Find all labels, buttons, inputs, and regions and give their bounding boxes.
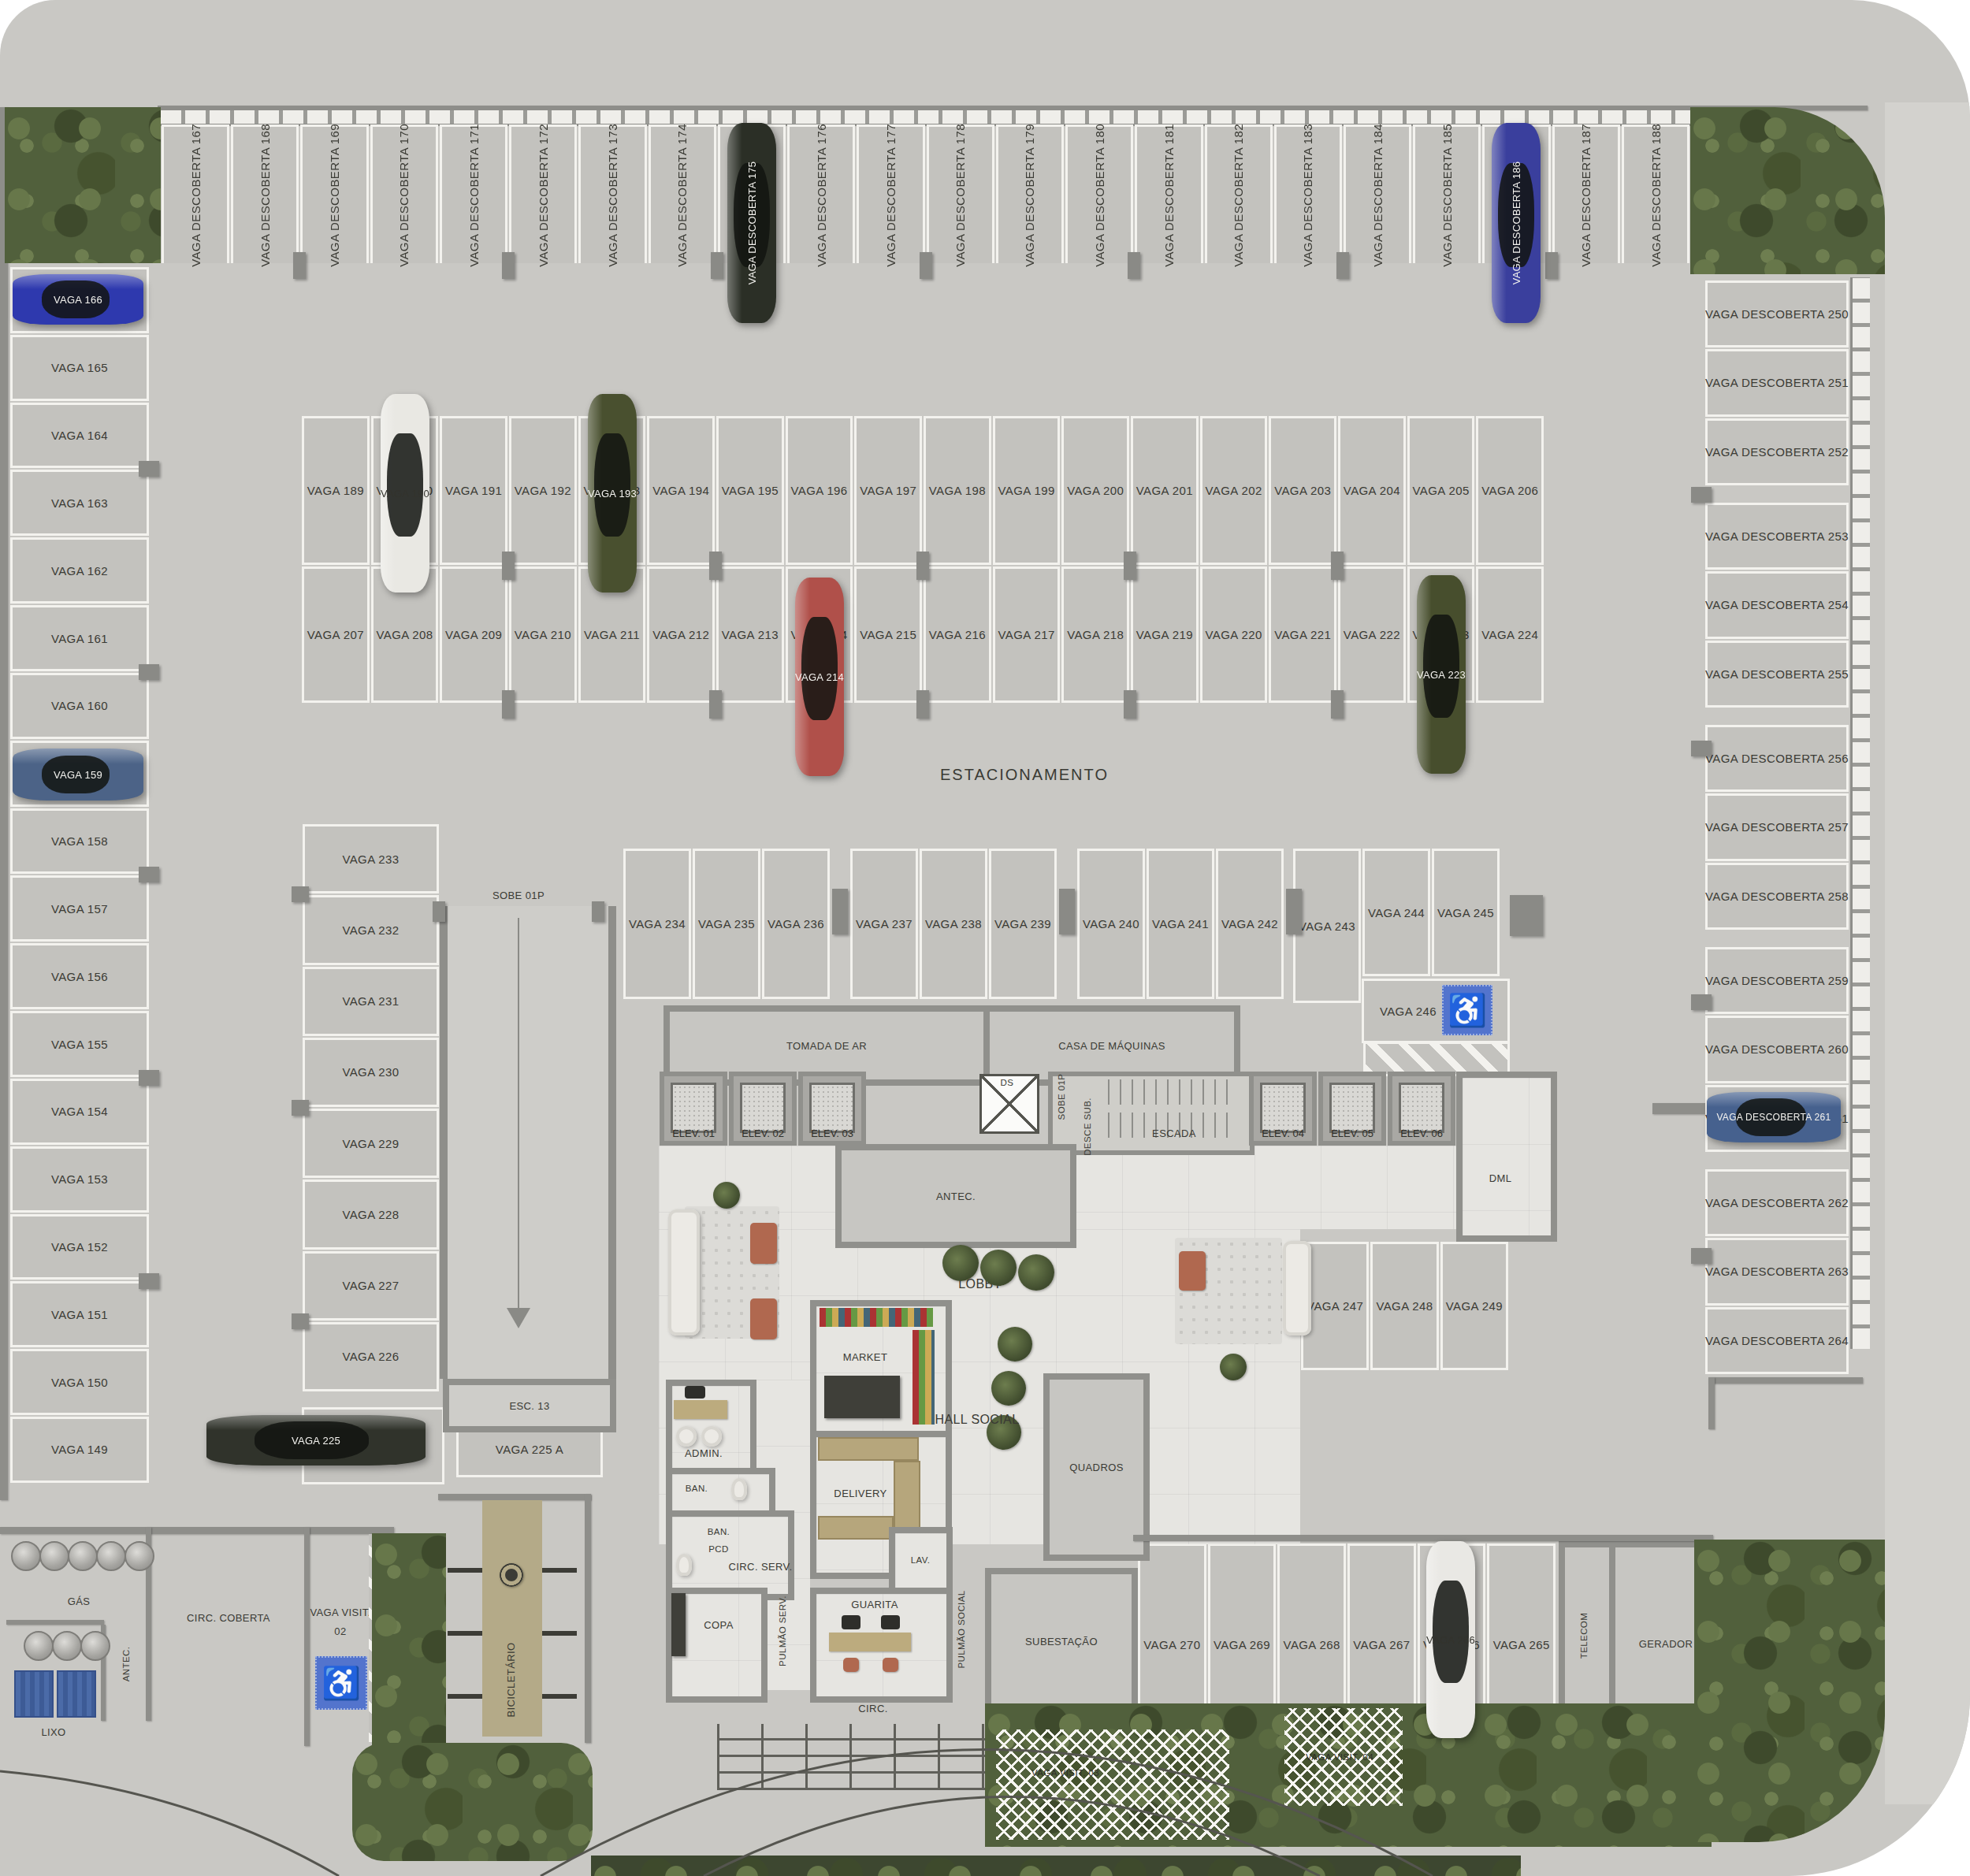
- admin-guest-chair-1: [676, 1426, 697, 1447]
- parking-stall: VAGA 158: [10, 808, 149, 875]
- stall-label: VAGA 150: [51, 1376, 108, 1389]
- stall-label: VAGA 249: [1446, 1299, 1503, 1313]
- stall-label: VAGA 242: [1221, 917, 1278, 931]
- parking-stall: VAGA 237: [850, 849, 918, 999]
- parking-stall: VAGA DESCOBERTA 174: [649, 124, 716, 263]
- parking-stall: VAGA DESCOBERTA 176: [787, 124, 855, 263]
- parking-stall: VAGA 227: [303, 1251, 439, 1321]
- stall-label: VAGA 152: [51, 1240, 108, 1254]
- stall-group: VAGA DESCOBERTA 253VAGA DESCOBERTA 254VA…: [1704, 502, 1849, 708]
- stall-label: VAGA 195: [722, 484, 779, 497]
- parking-stall: VAGA 220: [1200, 567, 1268, 703]
- stall-label: VAGA 265: [1493, 1638, 1550, 1651]
- parking-stall: VAGA DESCOBERTA 260: [1705, 1016, 1849, 1083]
- parking-stall: VAGA 233: [303, 824, 439, 893]
- column-pillar: [292, 1100, 309, 1116]
- parking-stall: VAGA 156: [10, 943, 149, 1009]
- column-pillar: [1331, 690, 1344, 719]
- stall-label: VAGA 230: [342, 1065, 399, 1079]
- elevator-cab-icon: [671, 1083, 716, 1133]
- stall-label-on-car: VAGA 159: [54, 769, 102, 781]
- delivery-lockers-top: [818, 1437, 919, 1461]
- parking-floor-plan: VAGA DESCOBERTA 167VAGA DESCOBERTA 168VA…: [0, 0, 1970, 1876]
- estacionamento-label: ESTACIONAMENTO: [940, 766, 1109, 784]
- ban-label: BAN.: [686, 1484, 708, 1493]
- bike-rack: [542, 1568, 577, 1573]
- lav-label: LAV.: [911, 1555, 931, 1565]
- parking-stall: VAGA 164: [10, 403, 149, 469]
- stall-label: VAGA 225 A: [496, 1443, 563, 1456]
- ban-toilet: [731, 1478, 747, 1500]
- guarita-chair-1: [842, 1615, 860, 1629]
- parking-stall: VAGA 202: [1200, 416, 1268, 565]
- parking-stall: VAGA DESCOBERTA 187: [1552, 124, 1620, 263]
- stall-col-right: VAGA DESCOBERTA 250VAGA DESCOBERTA 251VA…: [1704, 280, 1849, 1391]
- stall-col-left: VAGA 166VAGA 165VAGA 164VAGA 163VAGA 162…: [9, 266, 150, 1484]
- stall-label: VAGA 194: [652, 484, 709, 497]
- stall-label-on-car: VAGA DESCOBERTA 175: [746, 162, 758, 285]
- stall-label: VAGA 246: [1380, 1005, 1437, 1018]
- parking-stall: VAGA 192: [509, 416, 577, 565]
- column-pillar: [139, 1273, 159, 1289]
- stall-label: VAGA 189: [307, 484, 364, 497]
- parking-stall: VAGA 221: [1269, 567, 1336, 703]
- room-label: ANTEC.: [936, 1191, 976, 1202]
- parking-stall: VAGA DESCOBERTA 263: [1705, 1238, 1849, 1305]
- parking-stall: VAGA 236: [762, 849, 830, 999]
- dml-label: DML: [1489, 1172, 1512, 1184]
- stall-label: VAGA 155: [51, 1038, 108, 1051]
- bike-rack: [448, 1631, 482, 1636]
- guarita-desk: [829, 1633, 911, 1651]
- parking-stall: VAGA DESCOBERTA 178: [927, 124, 994, 263]
- room-subestacao: SUBESTAÇÃO: [985, 1568, 1138, 1714]
- visit04-label: VAGA VISIT. 04: [1306, 1752, 1373, 1762]
- stall-label: VAGA 235: [698, 917, 755, 931]
- stall-label: VAGA 164: [51, 429, 108, 442]
- stall-label: VAGA 154: [51, 1105, 108, 1118]
- stall-label: VAGA 151: [51, 1308, 108, 1321]
- stall-label: VAGA 161: [51, 632, 108, 645]
- armchair-right-1: [1179, 1251, 1206, 1291]
- stall-row-234-236: VAGA 234VAGA 235VAGA 236: [623, 848, 831, 1000]
- stall-row-247-249: VAGA 247VAGA 248VAGA 249: [1300, 1241, 1509, 1371]
- stall-label: VAGA DESCOBERTA 264: [1705, 1334, 1849, 1347]
- room-label: SUBESTAÇÃO: [1025, 1636, 1098, 1648]
- parking-stall: VAGA 234: [623, 849, 691, 999]
- parking-stall: VAGA 160: [10, 673, 149, 739]
- parking-stall: VAGA 245: [1432, 849, 1500, 976]
- hall-social-label: HALL SOCIAL: [935, 1413, 1020, 1427]
- stall-row-top: VAGA DESCOBERTA 167VAGA DESCOBERTA 168VA…: [161, 124, 1690, 264]
- parking-stall: VAGA DESCOBERTA 253: [1705, 503, 1849, 570]
- parking-stall: VAGA 209: [440, 567, 507, 703]
- visit03-lattice: [996, 1729, 1229, 1840]
- stall-group: VAGA DESCOBERTA 262VAGA DESCOBERTA 263VA…: [1704, 1168, 1849, 1375]
- gas-cylinder: [52, 1631, 82, 1661]
- stall-label: VAGA 196: [790, 484, 847, 497]
- circ-label: CIRC.: [858, 1703, 887, 1714]
- bike-icon: [500, 1563, 523, 1587]
- parking-stall: VAGA 244: [1362, 849, 1430, 976]
- parking-stall: VAGA DESCOBERTA 255: [1705, 641, 1849, 708]
- stall-label: VAGA 165: [51, 361, 108, 374]
- bike-rack: [542, 1694, 577, 1699]
- parking-stall: VAGA 239: [989, 849, 1057, 999]
- elevator-05: ELEV. 05: [1318, 1072, 1386, 1146]
- stall-label: VAGA DESCOBERTA 255: [1705, 667, 1849, 681]
- stall-label: VAGA DESCOBERTA 176: [815, 124, 828, 267]
- entry-railing: [717, 1724, 987, 1790]
- stall-label: VAGA 160: [51, 699, 108, 712]
- stall-label-on-car: VAGA 223: [1417, 669, 1466, 681]
- stall-label: VAGA DESCOBERTA 170: [397, 124, 411, 267]
- stall-label: VAGA 220: [1206, 628, 1262, 641]
- stall-label: VAGA 231: [342, 994, 399, 1008]
- parking-stall: VAGA DESCOBERTA 250: [1705, 280, 1849, 347]
- ban-pcd-toilet: [676, 1554, 692, 1576]
- elevator-bank-1: ELEV. 01 ELEV. 02 ELEV. 03: [659, 1072, 867, 1146]
- column-pillar: [1331, 552, 1344, 580]
- stall-label: VAGA DESCOBERTA 253: [1705, 529, 1849, 543]
- stall-label: VAGA 213: [722, 628, 779, 641]
- parking-stall: VAGA 152: [10, 1214, 149, 1280]
- stall-label: VAGA 219: [1136, 628, 1193, 641]
- plant-antec-3: [1018, 1254, 1054, 1291]
- stall-label: VAGA 244: [1368, 906, 1425, 919]
- sidewalk-right: [1885, 102, 1970, 1804]
- wall-visit02-left: [304, 1527, 310, 1746]
- parking-stall: VAGA DESCOBERTA 179: [996, 124, 1064, 263]
- delivery-label: DELIVERY: [834, 1488, 886, 1499]
- stall-label: VAGA 212: [652, 628, 709, 641]
- car-glass: [387, 433, 423, 537]
- stall-label: VAGA DESCOBERTA 252: [1705, 445, 1849, 459]
- admin-desk: [674, 1400, 727, 1419]
- stall-label: VAGA 239: [994, 917, 1051, 931]
- stall-label: VAGA 149: [51, 1443, 108, 1456]
- parking-stall: VAGA DESCOBERTA 251: [1705, 349, 1849, 416]
- guarita-visitor-chair-2: [883, 1658, 898, 1672]
- stall-label: VAGA 237: [856, 917, 913, 931]
- stall-label: VAGA DESCOBERTA 177: [884, 124, 898, 267]
- stall-label: VAGA 163: [51, 496, 108, 510]
- parking-stall: VAGA 195: [716, 416, 784, 565]
- parking-stall: VAGA DESCOBERTA 256: [1705, 725, 1849, 792]
- stall-col-233-226: VAGA 233VAGA 232VAGA 231VAGA 230VAGA 229…: [302, 823, 440, 1392]
- parking-stall: VAGA 224: [1476, 567, 1544, 703]
- stall-label: VAGA 269: [1214, 1638, 1270, 1651]
- car-glass: [801, 617, 838, 720]
- elevator-02: ELEV. 02: [729, 1072, 797, 1146]
- elevator-cab-icon: [1329, 1083, 1375, 1133]
- elevator-label: ELEV. 02: [742, 1127, 784, 1139]
- parking-stall: VAGA DESCOBERTA 257: [1705, 793, 1849, 860]
- parking-stall: VAGA 197: [854, 416, 922, 565]
- stall-label: VAGA 210: [515, 628, 571, 641]
- accessible-parking-icon: ♿: [315, 1656, 367, 1710]
- column-pillar: [1691, 487, 1712, 503]
- parking-stall: VAGA DESCOBERTA 262: [1705, 1169, 1849, 1236]
- stall-label: VAGA DESCOBERTA 167: [189, 124, 203, 267]
- column-pillar: [1286, 889, 1302, 934]
- wall-stub-dml-right: [1652, 1103, 1709, 1114]
- column-pillar: [1124, 552, 1136, 580]
- column-pillar: [292, 1313, 309, 1329]
- stall-label: VAGA DESCOBERTA 179: [1023, 124, 1036, 267]
- guarita-label: GUARITA: [851, 1599, 898, 1610]
- planter-bottom-left: [352, 1743, 593, 1861]
- stall-label: VAGA DESCOBERTA 258: [1705, 890, 1849, 903]
- column-pillar: [502, 690, 515, 719]
- plant-lobby-right: [1220, 1354, 1247, 1380]
- parking-stall: VAGA 248: [1370, 1242, 1438, 1370]
- ban-pcd-label-1: BAN.: [708, 1527, 730, 1536]
- stall-label: VAGA DESCOBERTA 251: [1705, 376, 1849, 389]
- stall-label: VAGA 158: [51, 834, 108, 848]
- column-pillar: [1691, 741, 1712, 756]
- wall-bici-top: [438, 1494, 591, 1500]
- parking-stall: VAGA 222: [1338, 567, 1406, 703]
- stall-label: VAGA 222: [1344, 628, 1400, 641]
- car: VAGA DESCOBERTA 186: [1492, 123, 1541, 323]
- stairwell-escada: [1048, 1072, 1254, 1155]
- stall-label: VAGA 198: [929, 484, 986, 497]
- elevator-06: ELEV. 06: [1388, 1072, 1455, 1146]
- stall-label: VAGA 191: [445, 484, 502, 497]
- stall-label: VAGA 208: [376, 628, 433, 641]
- stall-label-on-car: VAGA 193: [588, 488, 637, 500]
- column-pillar: [1691, 1248, 1712, 1264]
- stall-label: VAGA 192: [515, 484, 571, 497]
- parking-stall: VAGA DESCOBERTA 173: [578, 124, 646, 263]
- room-quadros: QUADROS: [1043, 1373, 1150, 1561]
- stall-label: VAGA DESCOBERTA 168: [258, 124, 272, 267]
- parking-stall: VAGA 218: [1061, 567, 1129, 703]
- gas-cylinder: [24, 1631, 54, 1661]
- copa-counter: [671, 1593, 686, 1656]
- parking-stall: VAGA 230: [303, 1038, 439, 1107]
- car: VAGA 166: [13, 274, 143, 325]
- parking-stall: VAGA DESCOBERTA 167: [162, 124, 229, 263]
- market-shelf-right: [913, 1330, 935, 1425]
- plant-antec-2: [980, 1250, 1017, 1286]
- column-pillar: [502, 552, 515, 580]
- stall-label: VAGA 211: [584, 628, 640, 641]
- visit03-label: VAGA VISIT. 03: [1031, 1768, 1099, 1778]
- gas-cylinder: [68, 1541, 98, 1571]
- parking-stall: VAGA 217: [993, 567, 1061, 703]
- parking-stall: VAGA 149: [10, 1417, 149, 1483]
- parking-stall: VAGA 240: [1077, 849, 1145, 999]
- elevator-bank-2: ELEV. 04 ELEV. 05 ELEV. 06: [1248, 1072, 1456, 1146]
- stall-label: VAGA DESCOBERTA 263: [1705, 1265, 1849, 1278]
- stall-group: VAGA DESCOBERTA 250VAGA DESCOBERTA 251VA…: [1704, 280, 1849, 486]
- sofa-left: [668, 1209, 700, 1335]
- copa-label: COPA: [704, 1619, 733, 1631]
- guarita-visitor-chair-1: [843, 1658, 859, 1672]
- stall-label: VAGA 197: [860, 484, 916, 497]
- stall-label: VAGA 206: [1481, 484, 1538, 497]
- column-pillar: [293, 252, 306, 279]
- wall-row270-top: [1133, 1535, 1713, 1541]
- stall-row-189-206: VAGA 189VAGA 190VAGA 191VAGA 192VAGA 193…: [301, 415, 1544, 566]
- parking-stall: VAGA 206: [1476, 416, 1544, 565]
- parking-stall: VAGA 150: [10, 1349, 149, 1415]
- column-pillar: [920, 252, 932, 279]
- lixo-label: LIXO: [41, 1726, 65, 1738]
- plant-lobby-left: [713, 1182, 740, 1209]
- elevator-cab-icon: [809, 1083, 855, 1133]
- ban-pcd-label-2: PCD: [708, 1544, 728, 1554]
- parking-stall: VAGA 157: [10, 875, 149, 942]
- parking-stall: VAGA 231: [303, 967, 439, 1036]
- sobe-stair-label: SOBE 01P: [1057, 1074, 1066, 1120]
- stall-label: VAGA DESCOBERTA 260: [1705, 1042, 1849, 1056]
- stall-label: VAGA 156: [51, 970, 108, 983]
- stall-group: VAGA DESCOBERTA 256VAGA DESCOBERTA 257VA…: [1704, 724, 1849, 931]
- column-pillar: [1128, 252, 1140, 279]
- parking-stall: VAGA DESCOBERTA 188: [1622, 124, 1689, 263]
- parking-stall: VAGA DESCOBERTA 171: [440, 124, 507, 263]
- stall-label: VAGA 247: [1307, 1299, 1363, 1313]
- elevator-label: ELEV. 03: [811, 1127, 853, 1139]
- stair-treads-upper: [1108, 1079, 1234, 1105]
- parking-stall: VAGA 163: [10, 470, 149, 536]
- car-glass: [1423, 615, 1459, 718]
- stall-label: VAGA DESCOBERTA 174: [675, 124, 689, 267]
- stall-label: VAGA 233: [342, 853, 399, 866]
- stall-label: VAGA 157: [51, 902, 108, 916]
- ramp-label: SOBE 01P: [492, 890, 545, 901]
- stall-label: VAGA DESCOBERTA 184: [1371, 124, 1385, 267]
- column-pillar: [1059, 889, 1075, 934]
- pulmao-serv-label: PULMÃO SERV.: [778, 1596, 787, 1666]
- car: VAGA 223: [1417, 575, 1466, 774]
- parking-stall: VAGA DESCOBERTA 258: [1705, 863, 1849, 930]
- stall-label: VAGA DESCOBERTA 181: [1162, 124, 1176, 267]
- stall-label: VAGA 245: [1437, 906, 1494, 919]
- column-pillar: [592, 901, 604, 922]
- parking-stall: VAGA 155: [10, 1011, 149, 1077]
- armchair-left-1: [750, 1223, 777, 1264]
- column-pillar: [711, 252, 723, 279]
- gas-label: GÁS: [68, 1596, 91, 1607]
- parking-stall: VAGA 249: [1440, 1242, 1508, 1370]
- stall-label: VAGA 234: [629, 917, 686, 931]
- gas-cylinder: [11, 1541, 41, 1571]
- parking-stall: VAGA DESCOBERTA 259: [1705, 947, 1849, 1014]
- car: VAGA 266: [1426, 1541, 1475, 1738]
- stall-row-240-242: VAGA 240VAGA 241VAGA 242: [1076, 848, 1284, 1000]
- wall-left: [0, 107, 8, 1500]
- parking-stall: VAGA 229: [303, 1109, 439, 1178]
- column-pillar: [1336, 252, 1349, 279]
- visit02-label-1: VAGA VISIT.: [310, 1607, 370, 1618]
- parking-stall: VAGA 228: [303, 1179, 439, 1249]
- stall-label: VAGA 207: [307, 628, 364, 641]
- parking-stall: VAGA 162: [10, 537, 149, 604]
- pulmao-social-label: PULMÃO SOCIAL: [957, 1590, 966, 1668]
- car-glass: [594, 433, 630, 537]
- stall-label-on-car: VAGA 190: [381, 488, 429, 500]
- trash-bin: [57, 1670, 96, 1718]
- parking-stall: VAGA 212: [647, 567, 715, 703]
- stall-label: VAGA DESCOBERTA 171: [467, 124, 481, 267]
- parking-stall: VAGA 165: [10, 335, 149, 401]
- stall-label: VAGA 217: [998, 628, 1054, 641]
- accessible-parking-icon: ♿: [1442, 985, 1492, 1035]
- parking-stall: VAGA DESCOBERTA 264: [1705, 1307, 1849, 1374]
- stall-label: VAGA 268: [1284, 1638, 1340, 1651]
- parking-stall: VAGA DESCOBERTA 170: [370, 124, 438, 263]
- stall-label: VAGA DESCOBERTA 262: [1705, 1196, 1849, 1209]
- stall-label: VAGA 240: [1083, 917, 1139, 931]
- market-counter: [824, 1376, 900, 1418]
- market-label: MARKET: [843, 1351, 888, 1363]
- elevator-01: ELEV. 01: [660, 1072, 727, 1146]
- parking-stall: VAGA 153: [10, 1146, 149, 1213]
- room-dml: [1456, 1072, 1557, 1242]
- car-glass: [1433, 1581, 1469, 1683]
- column-pillar: [832, 889, 848, 934]
- stall-label: VAGA 209: [445, 628, 502, 641]
- stall-label-on-car: VAGA 214: [795, 671, 844, 683]
- column-pillar: [1545, 252, 1558, 279]
- elevator-04: ELEV. 04: [1249, 1072, 1317, 1146]
- stall-label: VAGA DESCOBERTA 188: [1649, 124, 1663, 267]
- parking-stall: VAGA DESCOBERTA 177: [857, 124, 924, 263]
- stall-label: VAGA 221: [1274, 628, 1331, 641]
- parking-stall: VAGA 238: [920, 849, 987, 999]
- planter-top-left: [5, 107, 161, 263]
- parking-stall: VAGA 196: [786, 416, 853, 565]
- telecom-label: TELECOM: [1579, 1613, 1589, 1659]
- stall-label-on-car: VAGA 225: [292, 1435, 340, 1447]
- gas-cylinder: [80, 1631, 110, 1661]
- parking-stall: VAGA 194: [647, 416, 715, 565]
- column-pillar: [709, 552, 722, 580]
- ramp-arrow-head: [507, 1308, 530, 1328]
- stall-label: VAGA DESCOBERTA 178: [953, 124, 967, 267]
- bike-rack: [448, 1694, 482, 1699]
- parking-stall: VAGA DESCOBERTA 185: [1413, 124, 1481, 263]
- car: VAGA 159: [13, 749, 143, 801]
- stall-label: VAGA 224: [1481, 628, 1538, 641]
- column-pillar: [1691, 994, 1712, 1010]
- parking-stall: VAGA DESCOBERTA 182: [1205, 124, 1273, 263]
- column-pillar: [139, 461, 159, 477]
- stall-label-on-car: VAGA DESCOBERTA 261: [1716, 1112, 1831, 1123]
- stall-label: VAGA DESCOBERTA 169: [328, 124, 341, 267]
- parking-stall: VAGA 204: [1338, 416, 1406, 565]
- stall-row-237-239: VAGA 237VAGA 238VAGA 239: [849, 848, 1057, 1000]
- visit02-label-2: 02: [334, 1625, 346, 1637]
- planter-bici-left: [372, 1533, 446, 1762]
- column-pillar: [139, 1070, 159, 1086]
- stall-label: VAGA 218: [1067, 628, 1124, 641]
- trash-bin: [14, 1670, 54, 1718]
- stall-label: VAGA 227: [342, 1279, 399, 1292]
- parking-stall: VAGA 210: [509, 567, 577, 703]
- parking-stall: VAGA DESCOBERTA 181: [1135, 124, 1202, 263]
- column-pillar: [1510, 895, 1543, 936]
- stall-label: VAGA 267: [1353, 1638, 1410, 1651]
- parking-stall: VAGA 243: [1293, 849, 1361, 1003]
- elevator-cab-icon: [1399, 1083, 1444, 1133]
- stall-label: VAGA DESCOBERTA 180: [1093, 124, 1106, 267]
- parking-stall: VAGA 198: [924, 416, 991, 565]
